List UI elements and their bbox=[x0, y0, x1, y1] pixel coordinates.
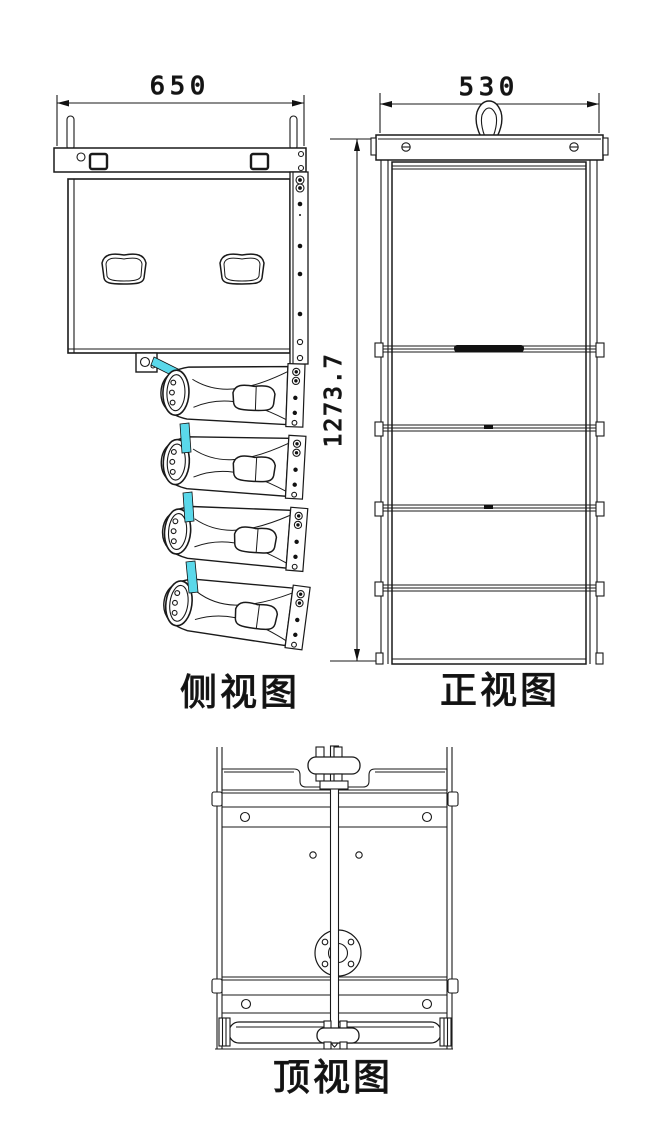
dimension-650: 650 bbox=[57, 71, 304, 146]
side-width-dimension: 650 bbox=[150, 71, 210, 100]
frame-slot-left bbox=[90, 154, 107, 169]
top-screw-lr bbox=[423, 1000, 432, 1009]
front-cabinet-stack bbox=[375, 162, 604, 664]
top-screw-ul bbox=[241, 813, 250, 822]
top-view: 顶视图 bbox=[212, 746, 458, 1099]
frame-slot-right bbox=[251, 154, 268, 169]
cabinet-handle-left bbox=[102, 254, 146, 284]
rod-clamp-top bbox=[308, 747, 360, 789]
side-view-label: 侧视图 bbox=[180, 671, 300, 714]
line-array-technical-drawing: 650 bbox=[0, 0, 655, 1134]
front-height-dimension: 1273.7 bbox=[321, 352, 347, 447]
frame-screw-left bbox=[402, 143, 410, 151]
dim-arrow-right bbox=[292, 100, 304, 107]
subwoofer-cabinet bbox=[68, 179, 290, 353]
frame-screw-right bbox=[570, 143, 578, 151]
top-view-label: 顶视图 bbox=[273, 1056, 393, 1099]
cabinet-handle-right bbox=[220, 254, 264, 284]
top-screw-ll bbox=[242, 1000, 251, 1009]
link-strap-1 bbox=[180, 423, 191, 453]
front-flying-frame bbox=[371, 135, 608, 160]
front-width-dimension: 530 bbox=[459, 72, 519, 101]
plate-hole-right bbox=[356, 852, 362, 858]
array-module-1 bbox=[160, 359, 305, 427]
plate-hole-left bbox=[310, 852, 316, 858]
drawing-page: 650 bbox=[0, 0, 655, 1134]
sub-rigging-rail bbox=[290, 172, 308, 364]
lifting-eye bbox=[476, 101, 502, 137]
divider-grip-bar bbox=[454, 345, 524, 352]
roll-bar-endcap-right bbox=[440, 1018, 451, 1046]
dimension-1273: 1273.7 bbox=[321, 139, 382, 661]
side-view: 650 bbox=[54, 71, 310, 714]
array-module-3 bbox=[160, 497, 308, 571]
frame-hole bbox=[77, 153, 85, 161]
flying-frame bbox=[54, 116, 306, 172]
top-screw-ur bbox=[423, 813, 432, 822]
front-view-label: 正视图 bbox=[440, 669, 560, 712]
array-module-4 bbox=[160, 569, 310, 650]
hang-pin-right bbox=[290, 116, 297, 150]
roll-bar-endcap-left bbox=[219, 1018, 230, 1046]
link-strap-2 bbox=[183, 492, 194, 522]
front-view: 530 1273.7 bbox=[321, 72, 608, 712]
center-pull-rod bbox=[331, 746, 339, 1047]
hang-pin-left bbox=[67, 116, 74, 150]
dim-arrow-left bbox=[57, 100, 69, 107]
